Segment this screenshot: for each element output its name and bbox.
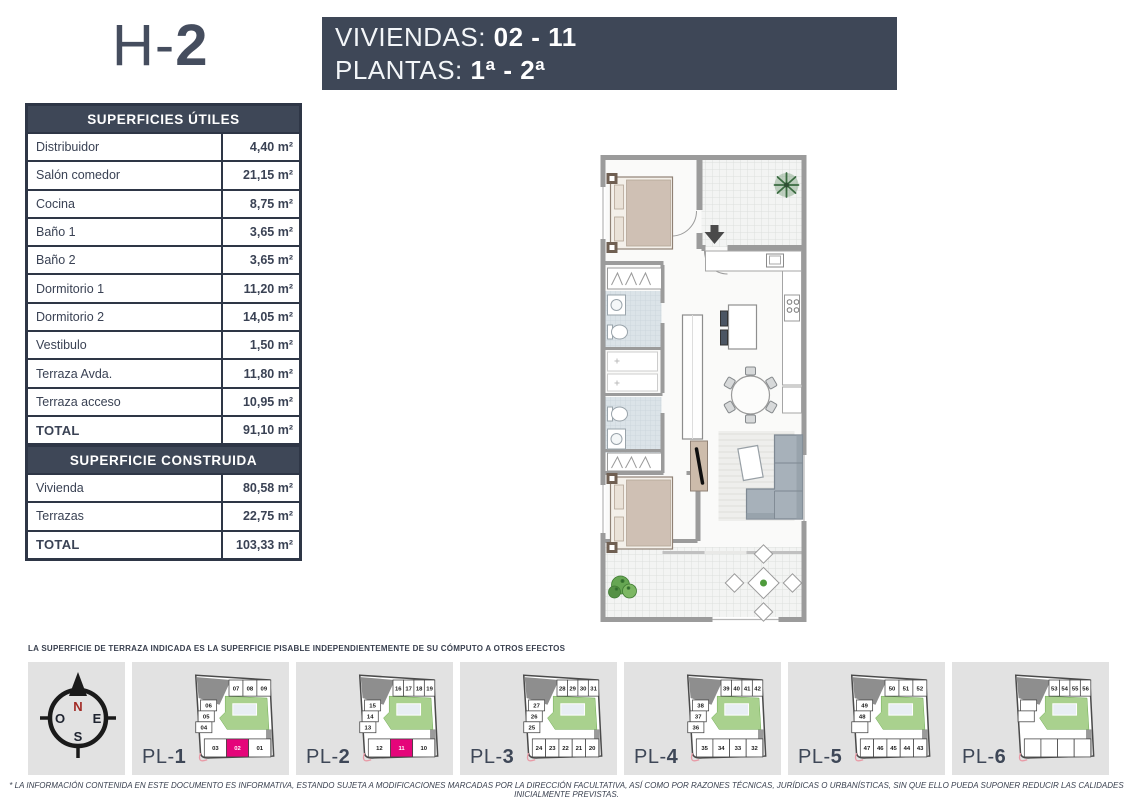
header-banner: VIVIENDAS: 02 - 11 PLANTAS: 1ª - 2ª <box>322 17 897 90</box>
plan-thumbnail-pl-6: 53545556PL-6 <box>952 662 1109 775</box>
row-label: Baño 2 <box>28 247 221 273</box>
svg-text:51: 51 <box>903 686 910 692</box>
svg-text:45: 45 <box>890 746 897 752</box>
row-label: Dormitorio 2 <box>28 304 221 330</box>
table-row: Terraza acceso10,95 m² <box>28 387 299 415</box>
row-value: 14,05 m² <box>221 304 299 330</box>
compass-west: O <box>55 711 65 726</box>
table-row: Cocina8,75 m² <box>28 189 299 217</box>
svg-text:53: 53 <box>1051 686 1058 692</box>
terrace-note: LA SUPERFICIE DE TERRAZA INDICADA ES LA … <box>28 644 565 653</box>
svg-text:15: 15 <box>369 704 376 710</box>
mini-plan-icon: 16171819151413121110 <box>336 665 450 771</box>
svg-text:38: 38 <box>697 704 704 710</box>
row-value: 4,40 m² <box>221 134 299 160</box>
svg-text:01: 01 <box>256 746 263 752</box>
row-label: Baño 1 <box>28 219 221 245</box>
svg-text:18: 18 <box>416 686 423 692</box>
svg-text:17: 17 <box>405 686 412 692</box>
svg-text:22: 22 <box>562 746 569 752</box>
table-row: Baño 13,65 m² <box>28 217 299 245</box>
bedroom-2-bed-icon <box>607 173 673 253</box>
row-label: Dormitorio 1 <box>28 275 221 301</box>
row-label: Vestibulo <box>28 332 221 358</box>
plan-label-prefix: PL- <box>142 746 175 768</box>
row-value: 91,10 m² <box>221 417 299 443</box>
svg-text:47: 47 <box>864 746 871 752</box>
table-row: Terrazas22,75 m² <box>28 501 299 529</box>
plan-label: PL-2 <box>306 746 350 769</box>
svg-text:54: 54 <box>1061 686 1068 692</box>
table-row: Terraza Avda.11,80 m² <box>28 358 299 386</box>
svg-text:05: 05 <box>203 715 210 721</box>
row-value: 1,50 m² <box>221 332 299 358</box>
row-value: 22,75 m² <box>221 503 299 529</box>
table-row: TOTAL91,10 m² <box>28 415 299 443</box>
mini-plan-icon: 282930312726252423222120 <box>500 665 614 771</box>
compass-north: N <box>73 699 82 714</box>
row-label: Vivienda <box>28 475 221 501</box>
table-row: Salón comedor21,15 m² <box>28 160 299 188</box>
svg-text:21: 21 <box>576 746 583 752</box>
svg-text:28: 28 <box>559 686 566 692</box>
svg-text:39: 39 <box>723 686 730 692</box>
plan-label-prefix: PL- <box>962 746 995 768</box>
svg-text:40: 40 <box>733 686 740 692</box>
brochure-page: H-2 VIVIENDAS: 02 - 11 PLANTAS: 1ª - 2ª … <box>0 0 1133 800</box>
legal-note: * LA INFORMACIÓN CONTENIDA EN ESTE DOCUM… <box>0 781 1133 799</box>
row-label: TOTAL <box>28 532 221 558</box>
plan-thumbnail-pl-3: 282930312726252423222120PL-3 <box>460 662 617 775</box>
svg-text:34: 34 <box>718 746 725 752</box>
svg-text:30: 30 <box>580 686 587 692</box>
plan-label: PL-6 <box>962 746 1006 769</box>
table-row: TOTAL103,33 m² <box>28 530 299 558</box>
svg-text:03: 03 <box>212 746 219 752</box>
plan-label-prefix: PL- <box>634 746 667 768</box>
plantas-label: PLANTAS: <box>335 55 471 85</box>
svg-text:10: 10 <box>420 746 427 752</box>
svg-text:23: 23 <box>549 746 556 752</box>
row-value: 11,20 m² <box>221 275 299 301</box>
svg-text:08: 08 <box>247 686 254 692</box>
svg-text:56: 56 <box>1082 686 1089 692</box>
plan-label-prefix: PL- <box>470 746 503 768</box>
row-label: Terraza Avda. <box>28 360 221 386</box>
table-header: SUPERFICIE CONSTRUIDA <box>28 447 299 473</box>
svg-text:14: 14 <box>367 715 374 721</box>
row-label: TOTAL <box>28 417 221 443</box>
plan-thumbnail-pl-1: 070809060504030201PL-1 <box>132 662 289 775</box>
shower-trays <box>608 352 658 391</box>
plan-label-number: 4 <box>667 746 679 768</box>
table-row: Distribuidor4,40 m² <box>28 132 299 160</box>
title-number: 2 <box>175 13 208 78</box>
compass-box: N O E S <box>28 662 125 775</box>
svg-text:07: 07 <box>233 686 240 692</box>
svg-text:48: 48 <box>859 715 866 721</box>
mini-plan-icon: 3940414238373635343332 <box>664 665 778 771</box>
table-row: Vestibulo1,50 m² <box>28 330 299 358</box>
row-label: Terrazas <box>28 503 221 529</box>
svg-text:41: 41 <box>744 686 751 692</box>
plan-thumbnail-pl-4: 3940414238373635343332PL-4 <box>624 662 781 775</box>
row-value: 11,80 m² <box>221 360 299 386</box>
svg-text:50: 50 <box>889 686 896 692</box>
svg-text:13: 13 <box>365 725 372 731</box>
compass-south: S <box>74 729 83 744</box>
plan-label-prefix: PL- <box>798 746 831 768</box>
svg-text:36: 36 <box>693 725 700 731</box>
svg-text:25: 25 <box>529 725 536 731</box>
table-row: Vivienda80,58 m² <box>28 473 299 501</box>
terrace-plant-icon <box>775 173 799 197</box>
svg-text:20: 20 <box>589 746 596 752</box>
compass-icon: N O E S <box>28 662 125 775</box>
table-superficie-construida: SUPERFICIE CONSTRUIDA Vivienda80,58 m²Te… <box>25 444 302 561</box>
plan-label-number: 5 <box>831 746 843 768</box>
compass-east: E <box>93 711 102 726</box>
svg-text:32: 32 <box>751 746 758 752</box>
row-value: 3,65 m² <box>221 219 299 245</box>
row-label: Salón comedor <box>28 162 221 188</box>
banner-viviendas: VIVIENDAS: 02 - 11 <box>335 21 897 54</box>
plan-thumbnail-pl-5: 50515249484746454443PL-5 <box>788 662 945 775</box>
table-header: SUPERFICIES ÚTILES <box>28 106 299 132</box>
table-superficies-utiles: SUPERFICIES ÚTILES Distribuidor4,40 m²Sa… <box>25 103 302 446</box>
row-value: 80,58 m² <box>221 475 299 501</box>
table-row: Baño 23,65 m² <box>28 245 299 273</box>
svg-text:37: 37 <box>695 715 702 721</box>
plan-label-number: 3 <box>503 746 515 768</box>
row-value: 10,95 m² <box>221 389 299 415</box>
row-value: 21,15 m² <box>221 162 299 188</box>
svg-text:27: 27 <box>533 704 540 710</box>
svg-text:24: 24 <box>536 746 543 752</box>
mini-plan-icon: 53545556 <box>992 665 1106 771</box>
svg-text:29: 29 <box>569 686 576 692</box>
svg-text:33: 33 <box>735 746 742 752</box>
thumbnail-row: N O E S 070809060504030201PL-11617181915… <box>28 662 1109 775</box>
viviendas-value: 02 - 11 <box>494 22 577 52</box>
table-row: Dormitorio 214,05 m² <box>28 302 299 330</box>
viviendas-label: VIVIENDAS: <box>335 22 494 52</box>
svg-text:55: 55 <box>1072 686 1079 692</box>
plan-label: PL-4 <box>634 746 678 769</box>
svg-text:16: 16 <box>395 686 402 692</box>
svg-text:31: 31 <box>590 686 597 692</box>
table-row: Dormitorio 111,20 m² <box>28 273 299 301</box>
hall-cabinet <box>683 315 703 439</box>
plantas-value: 1ª - 2ª <box>471 55 546 85</box>
plan-label-number: 6 <box>995 746 1007 768</box>
plan-label: PL-5 <box>798 746 842 769</box>
mini-plan-icon: 50515249484746454443 <box>828 665 942 771</box>
row-label: Cocina <box>28 191 221 217</box>
plan-label-number: 1 <box>175 746 187 768</box>
plan-label-number: 2 <box>339 746 351 768</box>
svg-text:52: 52 <box>917 686 924 692</box>
plan-label: PL-3 <box>470 746 514 769</box>
svg-text:46: 46 <box>877 746 884 752</box>
row-value: 8,75 m² <box>221 191 299 217</box>
svg-text:49: 49 <box>861 704 868 710</box>
bedroom-1-bed-icon <box>607 473 673 553</box>
terrace-glass-door <box>705 551 747 554</box>
svg-text:43: 43 <box>917 746 924 752</box>
title-prefix: H- <box>112 13 175 78</box>
row-value: 103,33 m² <box>221 532 299 558</box>
svg-text:04: 04 <box>201 725 208 731</box>
svg-text:35: 35 <box>701 746 708 752</box>
svg-text:11: 11 <box>398 746 405 752</box>
svg-text:12: 12 <box>376 746 383 752</box>
row-label: Distribuidor <box>28 134 221 160</box>
plan-label-prefix: PL- <box>306 746 339 768</box>
row-label: Terraza acceso <box>28 389 221 415</box>
sliding-door <box>691 441 708 491</box>
mini-plan-icon: 070809060504030201 <box>172 665 286 771</box>
svg-text:44: 44 <box>904 746 911 752</box>
floor-plan <box>600 155 807 625</box>
svg-text:26: 26 <box>531 715 538 721</box>
svg-text:02: 02 <box>234 746 241 752</box>
svg-text:09: 09 <box>261 686 268 692</box>
page-title: H-2 <box>112 14 208 78</box>
banner-plantas: PLANTAS: 1ª - 2ª <box>335 54 897 87</box>
svg-text:06: 06 <box>205 704 212 710</box>
svg-text:42: 42 <box>754 686 761 692</box>
svg-text:19: 19 <box>426 686 433 692</box>
plan-thumbnail-pl-2: 16171819151413121110PL-2 <box>296 662 453 775</box>
plan-label: PL-1 <box>142 746 186 769</box>
row-value: 3,65 m² <box>221 247 299 273</box>
